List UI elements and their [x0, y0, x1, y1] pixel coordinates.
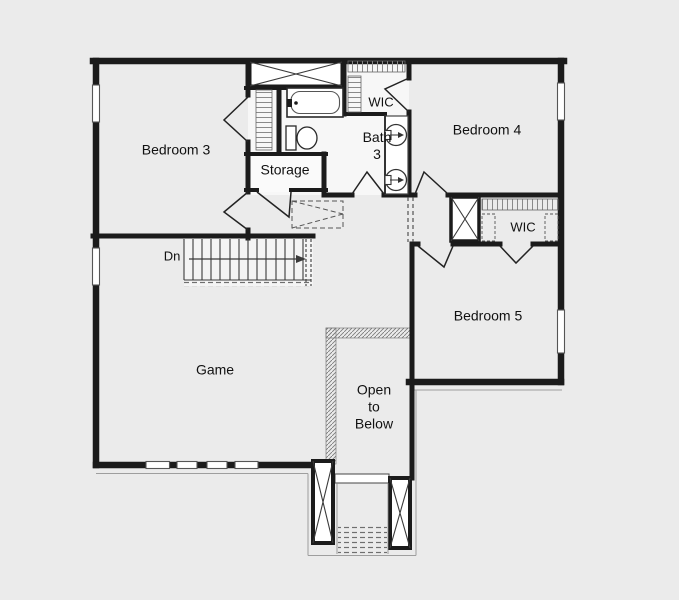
window: [235, 462, 258, 469]
column-x: [313, 461, 333, 543]
chase-x-box: [451, 197, 479, 241]
room-label-bedroom-5: Bedroom 5: [454, 308, 522, 325]
closet-x-box: [250, 62, 342, 86]
window: [93, 248, 100, 285]
door-swing-bedroom5: [418, 246, 453, 267]
window: [146, 462, 170, 469]
window: [335, 474, 389, 483]
door-swing-wic-bedroom5: [500, 246, 533, 263]
door-swing-bedroom3-entry: [224, 192, 248, 230]
toilet: [286, 126, 317, 150]
floor-plan: Bedroom 3 Storage Bath 3 WIC Bedroom 4 W…: [0, 0, 679, 600]
room-label-bedroom-3: Bedroom 3: [142, 142, 210, 159]
room-label-bedroom-4: Bedroom 4: [453, 122, 521, 139]
room-label-open-to-below-line3: Below: [355, 416, 393, 433]
window: [207, 462, 227, 469]
attic-access-dashed: [292, 201, 343, 228]
cased-opening-dashed: [408, 197, 413, 242]
shelving-hatch: [256, 90, 272, 150]
room-label-game: Game: [196, 362, 234, 379]
room-label-bath-3-line2: 3: [363, 146, 392, 163]
column-x: [390, 478, 410, 548]
room-label-open-to-below: Open to Below: [355, 382, 393, 433]
window: [93, 85, 100, 122]
door-swing-bedroom4: [415, 172, 448, 194]
room-label-open-to-below-line2: to: [355, 399, 393, 416]
room-label-bath-3-line1: Bath: [363, 129, 392, 146]
window: [177, 462, 197, 469]
room-label-wic-bedroom4: WIC: [368, 94, 393, 111]
window: [558, 310, 565, 353]
room-label-storage: Storage: [260, 162, 309, 179]
door-swing-storage: [257, 192, 291, 217]
window: [558, 83, 565, 120]
door-swing-bedroom3-closet: [224, 97, 248, 142]
room-label-open-to-below-line1: Open: [355, 382, 393, 399]
room-label-bath-3: Bath 3: [363, 129, 392, 163]
floor-plan-canvas: [0, 0, 679, 600]
stair-direction-label: Dn: [164, 248, 181, 265]
bathtub: [287, 88, 343, 117]
room-label-wic-bedroom5: WIC: [510, 219, 535, 236]
